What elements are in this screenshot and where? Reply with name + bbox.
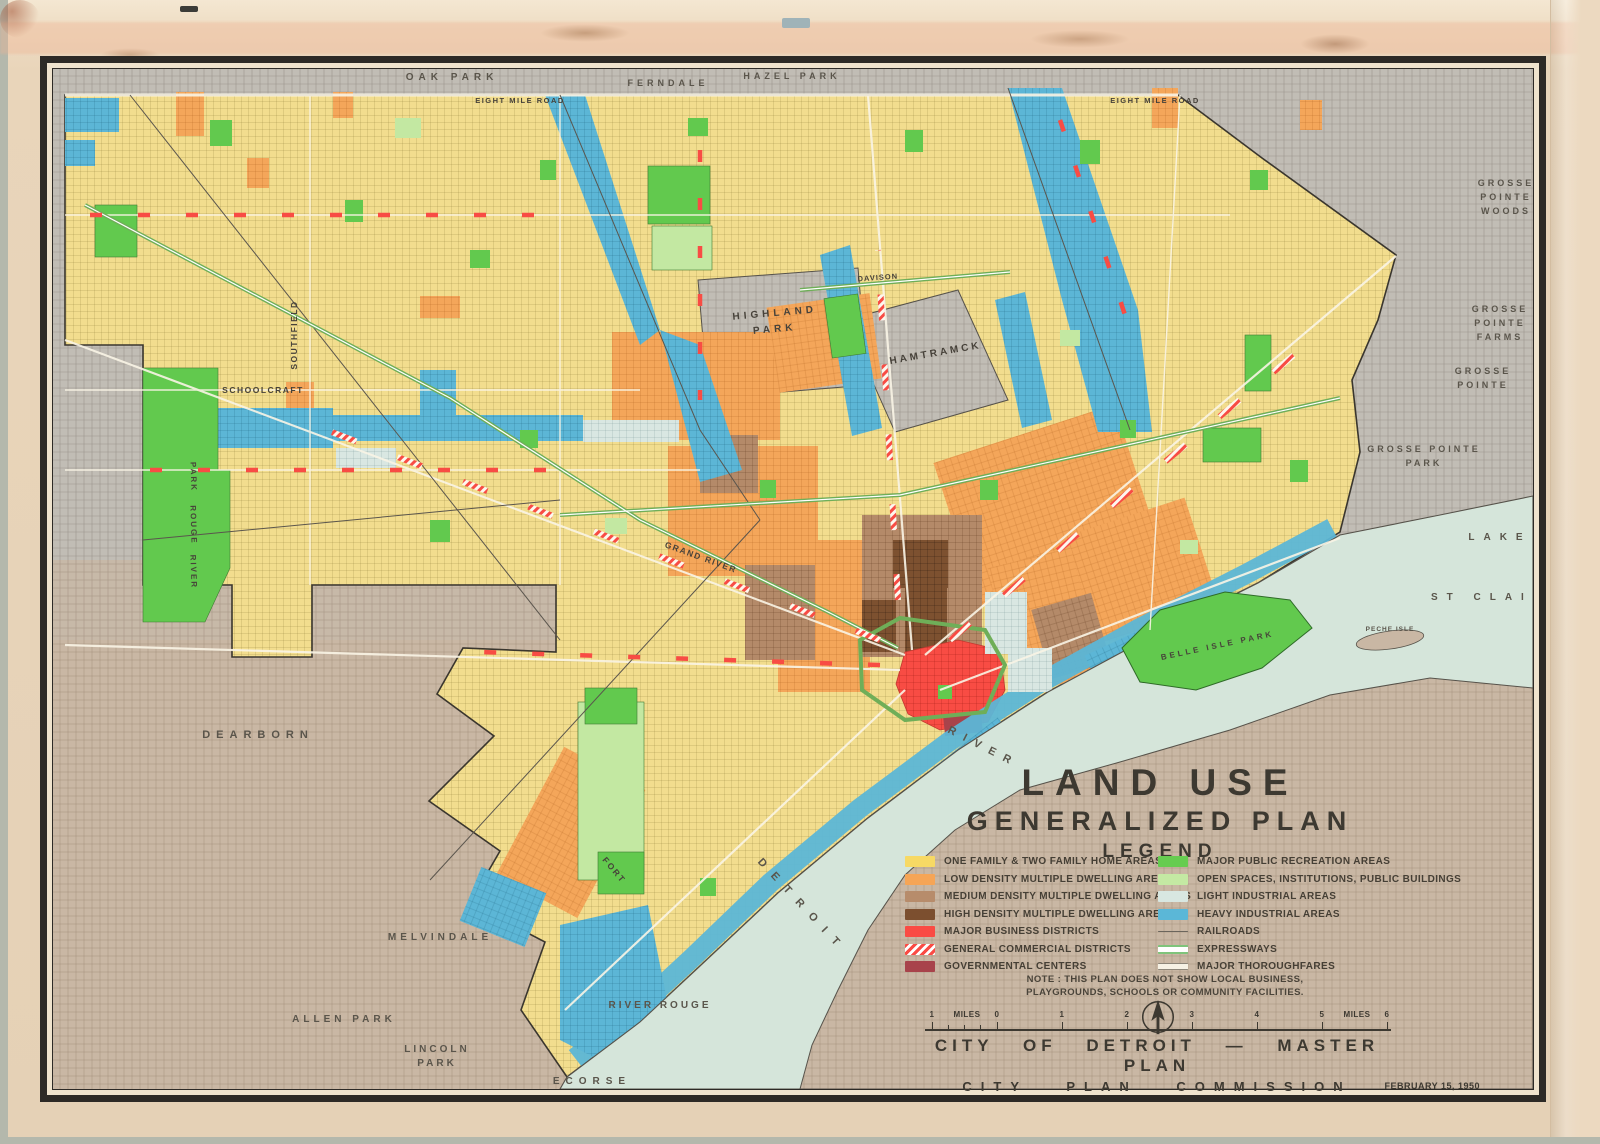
- scale-label: 1: [1060, 1010, 1065, 1019]
- label-grosse-pointe: POINTE: [1457, 380, 1509, 390]
- label-grosse-pointe: GROSSE: [1455, 366, 1512, 376]
- label-dearborn: DEARBORN: [202, 729, 314, 741]
- attribution-line1: CITY OF DETROIT — MASTER PLAN: [922, 1036, 1392, 1076]
- ink-mark: [180, 6, 198, 12]
- legend-item: GENERAL COMMERCIAL DISTRICTS: [905, 941, 1158, 959]
- scale-label: MILES: [1344, 1010, 1371, 1019]
- label-ferndale: FERNDALE: [628, 78, 709, 88]
- label-ecorse: ECORSE: [553, 1076, 631, 1087]
- scale-label: 1: [930, 1010, 935, 1019]
- scale-label: 5: [1320, 1010, 1325, 1019]
- legend-label: GENERAL COMMERCIAL DISTRICTS: [944, 944, 1131, 955]
- label-grosse-pointe-woods: GROSSE: [1478, 178, 1533, 188]
- scale-label: 2: [1125, 1010, 1130, 1019]
- legend-label: MAJOR THOROUGHFARES: [1197, 961, 1335, 972]
- legend-label: LIGHT INDUSTRIAL AREAS: [1197, 891, 1336, 902]
- legend-item: LIGHT INDUSTRIAL AREAS: [1158, 888, 1480, 906]
- tape-mark: [782, 18, 810, 28]
- north-arrow-icon: [1137, 996, 1179, 1038]
- title-block: LAND USE GENERALIZED PLAN LEGEND: [940, 762, 1380, 863]
- legend-swatch: [905, 856, 935, 867]
- paper-stain: [0, 0, 40, 38]
- scale-label: 0: [995, 1010, 1000, 1019]
- label-eight-mile-e: EIGHT MILE ROAD: [1110, 96, 1200, 105]
- note-line: NOTE : THIS PLAN DOES NOT SHOW LOCAL BUS…: [905, 973, 1425, 986]
- legend-left-column: ONE FAMILY & TWO FAMILY HOME AREAS LOW D…: [905, 853, 1158, 976]
- attribution: CITY OF DETROIT — MASTER PLAN CITY PLAN …: [922, 1036, 1392, 1094]
- map-subtitle: GENERALIZED PLAN: [940, 806, 1380, 837]
- label-eight-mile-w: EIGHT MILE ROAD: [475, 96, 565, 105]
- label-hazel-park: HAZEL PARK: [743, 71, 840, 81]
- label-grosse-pointe-woods: WOODS: [1481, 206, 1531, 216]
- legend-swatch: [905, 961, 935, 972]
- label-southfield: SOUTHFIELD: [289, 300, 299, 369]
- legend-swatch-railroad: [1158, 931, 1188, 932]
- legend-item: MAJOR PUBLIC RECREATION AREAS: [1158, 853, 1480, 871]
- label-grosse-pointe-park: GROSSE POINTE: [1367, 444, 1481, 454]
- label-allen-park: ALLEN PARK: [292, 1014, 396, 1025]
- label-st-clair: ST CLAIR: [1431, 592, 1533, 603]
- legend-swatch: [905, 909, 935, 920]
- scanned-map-page: OAK PARK FERNDALE HAZEL PARK EIGHT MILE …: [0, 0, 1600, 1144]
- paper-stain: [540, 24, 630, 42]
- paper-fold-edge: [1550, 0, 1600, 1137]
- legend-item: EXPRESSWAYS: [1158, 941, 1480, 959]
- legend-item: HEAVY INDUSTRIAL AREAS: [1158, 906, 1480, 924]
- label-peche-isle: PECHE ISLE: [1366, 626, 1415, 633]
- legend-swatch-hatch: [905, 944, 935, 955]
- legend: ONE FAMILY & TWO FAMILY HOME AREAS LOW D…: [905, 853, 1480, 976]
- legend-swatch: [905, 926, 935, 937]
- label-rouge-park: PARK: [188, 462, 198, 492]
- legend-swatch-expressway: [1158, 945, 1188, 954]
- legend-label: MEDIUM DENSITY MULTIPLE DWELLING AREAS: [944, 891, 1191, 902]
- label-grosse-pointe-farms: POINTE: [1474, 318, 1526, 328]
- legend-label: HEAVY INDUSTRIAL AREAS: [1197, 909, 1340, 920]
- legend-right-column: MAJOR PUBLIC RECREATION AREAS OPEN SPACE…: [1158, 853, 1480, 976]
- legend-item: MEDIUM DENSITY MULTIPLE DWELLING AREAS: [905, 888, 1158, 906]
- label-oak-park: OAK PARK: [406, 72, 499, 83]
- scale-label: 6: [1385, 1010, 1390, 1019]
- legend-label: MAJOR PUBLIC RECREATION AREAS: [1197, 856, 1390, 867]
- scale-label: MILES: [954, 1010, 981, 1019]
- legend-item: HIGH DENSITY MULTIPLE DWELLING AREAS: [905, 906, 1158, 924]
- chandler-park: [1203, 428, 1261, 462]
- label-river-rouge: RIVER ROUGE: [608, 1000, 711, 1011]
- legend-item: LOW DENSITY MULTIPLE DWELLING AREAS: [905, 871, 1158, 889]
- label-rouge-park: RIVER: [188, 555, 198, 590]
- legend-label: OPEN SPACES, INSTITUTIONS, PUBLIC BUILDI…: [1197, 874, 1461, 885]
- legend-label: LOW DENSITY MULTIPLE DWELLING AREAS: [944, 874, 1173, 885]
- legend-swatch: [905, 891, 935, 902]
- legend-item: OPEN SPACES, INSTITUTIONS, PUBLIC BUILDI…: [1158, 871, 1480, 889]
- legend-swatch: [1158, 909, 1188, 920]
- label-melvindale: MELVINDALE: [388, 932, 492, 943]
- scale-line: [925, 1029, 1391, 1031]
- legend-label: HIGH DENSITY MULTIPLE DWELLING AREAS: [944, 909, 1175, 920]
- paper-stain: [1300, 34, 1370, 54]
- legend-label: ONE FAMILY & TWO FAMILY HOME AREAS: [944, 856, 1162, 867]
- label-grosse-pointe-park: PARK: [1406, 458, 1443, 468]
- label-schoolcraft: SCHOOLCRAFT: [222, 385, 304, 395]
- attribution-line2: CITY PLAN COMMISSION: [922, 1079, 1392, 1094]
- legend-label: MAJOR BUSINESS DISTRICTS: [944, 926, 1099, 937]
- legend-label: EXPRESSWAYS: [1197, 944, 1277, 955]
- legend-item: RAILROADS: [1158, 923, 1480, 941]
- label-lincoln-park: PARK: [417, 1058, 457, 1069]
- legend-item: MAJOR BUSINESS DISTRICTS: [905, 923, 1158, 941]
- legend-label: RAILROADS: [1197, 926, 1260, 937]
- legend-swatch-thoroughfare: [1158, 963, 1188, 970]
- paper-stain: [1030, 30, 1130, 48]
- label-grosse-pointe-farms: GROSSE: [1472, 304, 1529, 314]
- label-lincoln-park: LINCOLN: [404, 1044, 469, 1055]
- map-title: LAND USE: [940, 762, 1380, 804]
- label-grosse-pointe-farms: FARMS: [1477, 332, 1524, 342]
- legend-swatch: [1158, 891, 1188, 902]
- date-stamp: FEBRUARY 15, 1950: [1340, 1081, 1480, 1091]
- scale-label: 4: [1255, 1010, 1260, 1019]
- label-lake: LAKE: [1468, 532, 1531, 543]
- legend-swatch: [1158, 856, 1188, 867]
- legend-label: GOVERNMENTAL CENTERS: [944, 961, 1087, 972]
- legend-swatch: [905, 874, 935, 885]
- legend-item: ONE FAMILY & TWO FAMILY HOME AREAS: [905, 853, 1158, 871]
- legend-swatch: [1158, 874, 1188, 885]
- label-rouge-park: ROUGE: [188, 505, 198, 545]
- rouge-park: [143, 368, 230, 622]
- label-grosse-pointe-woods: POINTE: [1480, 192, 1532, 202]
- scale-label: 3: [1190, 1010, 1195, 1019]
